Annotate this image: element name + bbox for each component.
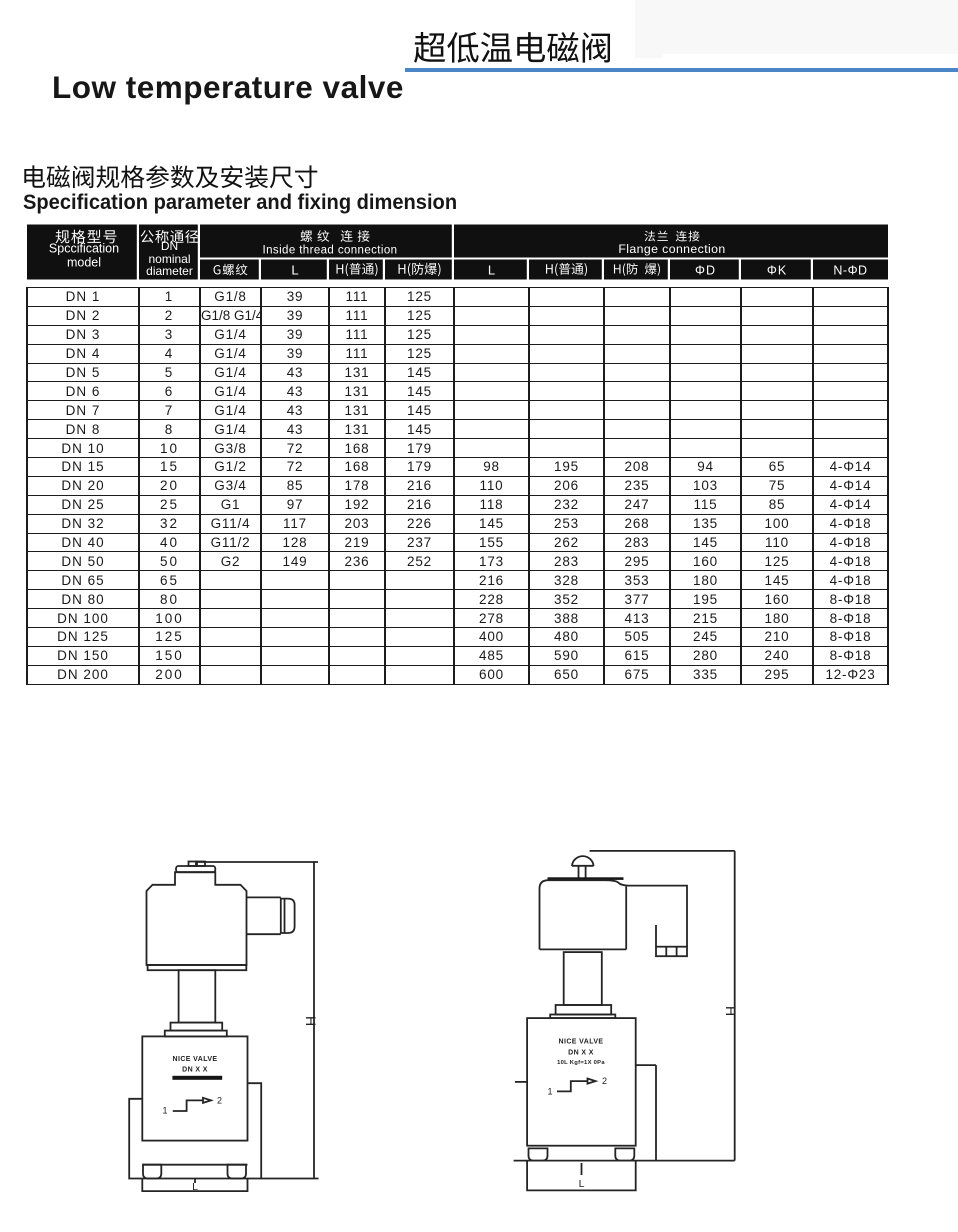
svg-text:NICE VALVE: NICE VALVE <box>173 1056 218 1063</box>
svg-text:1: 1 <box>162 1106 167 1116</box>
svg-text:Spccification: Spccification <box>49 242 119 256</box>
svg-text:N-ΦD: N-ΦD <box>833 264 867 278</box>
svg-text:DN X X: DN X X <box>182 1067 208 1074</box>
svg-text:Flange connection: Flange connection <box>618 242 725 256</box>
svg-text:DN X X: DN X X <box>568 1050 594 1057</box>
svg-text:2: 2 <box>602 1076 607 1086</box>
svg-text:NICE VALVE: NICE VALVE <box>559 1039 604 1046</box>
svg-text:L: L <box>291 263 298 278</box>
svg-text:10L Kgf=1X 0Pa: 10L Kgf=1X 0Pa <box>557 1060 605 1066</box>
svg-text:Inside thread connection: Inside thread connection <box>263 245 398 257</box>
svg-text:diameter: diameter <box>146 264 193 278</box>
svg-text:H: H <box>303 1016 319 1026</box>
svg-text:L: L <box>579 1178 585 1190</box>
svg-text:L: L <box>488 263 495 278</box>
svg-text:ΦK: ΦK <box>767 264 787 278</box>
svg-text:H: H <box>723 1006 739 1016</box>
svg-text:1: 1 <box>547 1087 552 1097</box>
svg-text:ΦD: ΦD <box>695 264 716 278</box>
svg-text:DN: DN <box>161 239 178 253</box>
svg-text:2: 2 <box>217 1096 222 1106</box>
svg-text:L: L <box>192 1181 198 1193</box>
svg-text:model: model <box>67 256 101 270</box>
